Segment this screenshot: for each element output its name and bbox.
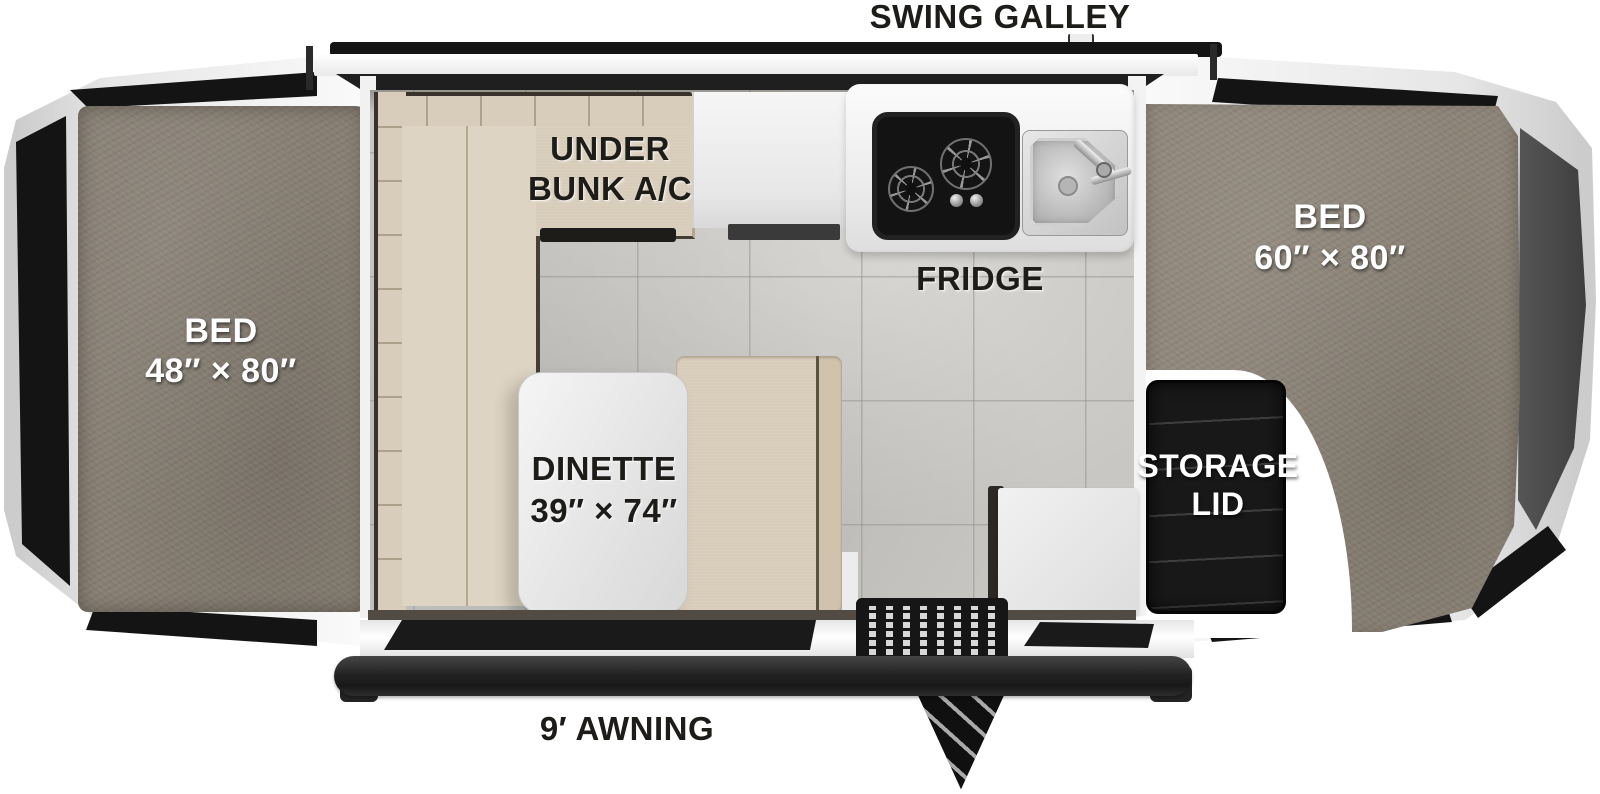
swing-galley-label: SWING GALLEY — [870, 0, 1131, 33]
bed-right-label: BED — [1293, 200, 1366, 234]
left-roof-latch — [306, 46, 313, 90]
burner-small-icon — [888, 166, 934, 212]
awning-label: 9′ AWNING — [540, 712, 714, 745]
stove-knob-icon — [950, 194, 963, 207]
galley-cabinet-gap — [728, 224, 840, 240]
bottom-window-left — [382, 618, 818, 652]
roof-white-band — [314, 54, 1198, 76]
bed-right-size-label: 60″ × 80″ — [1254, 241, 1405, 275]
sofa-backrest-top — [374, 92, 692, 130]
door-side-cabinet — [998, 488, 1138, 614]
bottom-wall-edge — [368, 610, 1136, 620]
under-bunk-ac-label-line1: UNDER — [550, 132, 670, 165]
fridge-label: FRIDGE — [916, 262, 1044, 295]
dinette-bench — [676, 356, 842, 614]
right-roof-latch — [1210, 44, 1217, 80]
faucet-hub-icon — [1096, 162, 1112, 178]
burner-large-icon — [940, 138, 992, 190]
rv-floorplan-diagram: SWING GALLEY BED 48″ × 80″ BED 60″ × 80″… — [0, 0, 1600, 794]
left-bed-side-window — [14, 112, 72, 590]
under-bunk-ac-vent — [540, 228, 676, 242]
storage-lid-label-line2: LID — [1191, 488, 1244, 520]
dinette-label: DINETTE — [532, 452, 677, 485]
bed-left-label: BED — [184, 314, 257, 348]
sink-drain-icon — [1058, 176, 1078, 196]
stove-knob-icon — [970, 194, 983, 207]
awning-rail — [334, 656, 1192, 696]
galley-cabinet — [692, 92, 866, 228]
bed-left-size-label: 48″ × 80″ — [145, 354, 296, 388]
under-bunk-ac-label-line2: BUNK A/C — [528, 172, 692, 205]
dinette-size-label: 39″ × 74″ — [530, 494, 677, 527]
storage-lid-label-line1: STORAGE — [1137, 450, 1298, 482]
